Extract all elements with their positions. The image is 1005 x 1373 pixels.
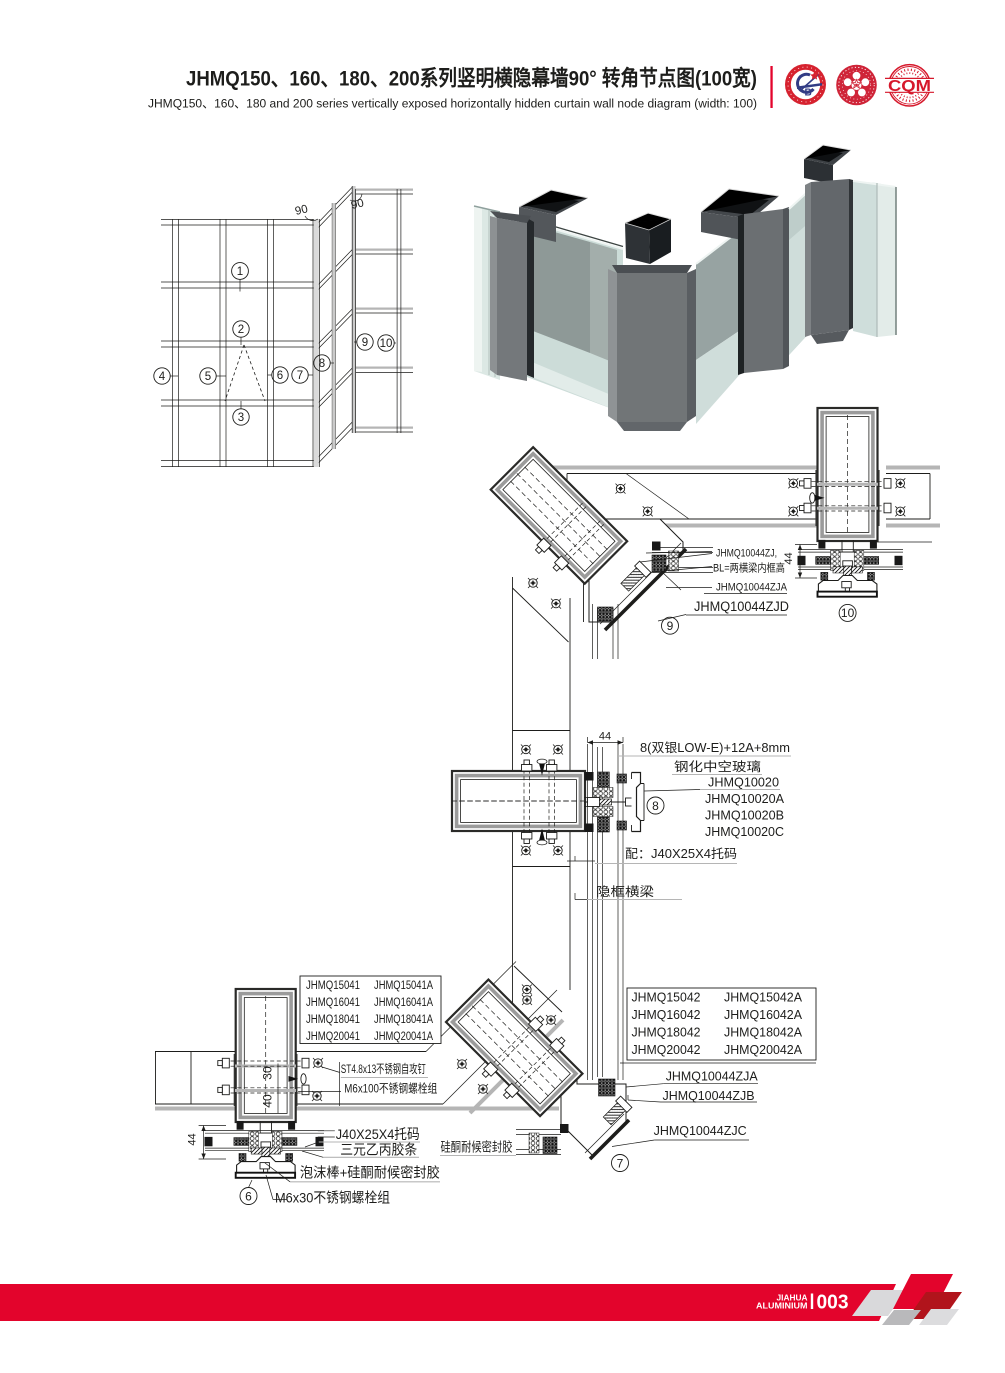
svg-text:JHMQ16042: JHMQ16042 bbox=[632, 1007, 701, 1022]
svg-text:JHMQ10044ZJD: JHMQ10044ZJD bbox=[694, 599, 789, 614]
svg-text:1: 1 bbox=[237, 266, 243, 278]
svg-text:钢化中空玻璃: 钢化中空玻璃 bbox=[674, 759, 761, 774]
svg-text:ST4.8x13不锈钢自攻钉: ST4.8x13不锈钢自攻钉 bbox=[341, 1061, 426, 1076]
svg-text:JHMQ20042A: JHMQ20042A bbox=[724, 1042, 802, 1057]
svg-text:44: 44 bbox=[599, 731, 611, 743]
svg-text:B: B bbox=[805, 88, 812, 99]
svg-text:BL=两横梁内框高: BL=两横梁内框高 bbox=[713, 561, 785, 575]
svg-text:JHMQ10020A: JHMQ10020A bbox=[705, 792, 785, 806]
svg-text:JHMQ10020C: JHMQ10020C bbox=[705, 825, 784, 839]
svg-text:JHMQ20041: JHMQ20041 bbox=[306, 1029, 360, 1043]
svg-text:JHMQ10044ZJA: JHMQ10044ZJA bbox=[666, 1070, 759, 1084]
svg-text:JHMQ20042: JHMQ20042 bbox=[632, 1042, 701, 1057]
svg-text:JHMQ15041: JHMQ15041 bbox=[306, 978, 360, 992]
svg-text:JHMQ10044ZJC: JHMQ10044ZJC bbox=[654, 1124, 747, 1138]
svg-text:5: 5 bbox=[205, 371, 211, 383]
svg-text:配：J40X25X4托码: 配：J40X25X4托码 bbox=[625, 847, 737, 861]
svg-text:JHMQ16041: JHMQ16041 bbox=[306, 995, 360, 1009]
svg-text:7: 7 bbox=[297, 370, 303, 382]
svg-text:8: 8 bbox=[652, 799, 659, 813]
svg-text:40: 40 bbox=[261, 1094, 275, 1108]
svg-text:9: 9 bbox=[667, 619, 674, 633]
svg-text:30: 30 bbox=[261, 1066, 275, 1080]
svg-text:ALUMINIUM: ALUMINIUM bbox=[756, 1301, 808, 1310]
svg-text:8(双银LOW-E)+12A+8mm: 8(双银LOW-E)+12A+8mm bbox=[640, 741, 790, 755]
svg-text:3: 3 bbox=[238, 412, 244, 424]
svg-text:硅酮耐候密封胶: 硅酮耐候密封胶 bbox=[441, 1140, 513, 1155]
svg-text:2: 2 bbox=[238, 324, 244, 336]
svg-text:003: 003 bbox=[817, 1291, 849, 1314]
svg-text:9: 9 bbox=[362, 337, 368, 349]
svg-text:JHMQ16041A: JHMQ16041A bbox=[374, 995, 434, 1009]
svg-text:8: 8 bbox=[319, 358, 325, 370]
svg-text:JHMQ16042A: JHMQ16042A bbox=[724, 1007, 802, 1022]
svg-text:JHMQ150、160、180 and 200 series: JHMQ150、160、180 and 200 series verticall… bbox=[148, 97, 757, 111]
svg-text:4: 4 bbox=[159, 371, 166, 383]
svg-text:JHMQ18041A: JHMQ18041A bbox=[374, 1012, 434, 1026]
svg-text:JHMQ15042A: JHMQ15042A bbox=[724, 990, 802, 1005]
svg-text:JHMQ18042A: JHMQ18042A bbox=[724, 1025, 802, 1040]
svg-text:三元乙丙胶条: 三元乙丙胶条 bbox=[340, 1142, 417, 1158]
svg-text:JHMQ18041: JHMQ18041 bbox=[306, 1012, 360, 1026]
svg-text:泡沫棒+硅酮耐候密封胶: 泡沫棒+硅酮耐候密封胶 bbox=[300, 1165, 440, 1181]
svg-text:隐框横梁: 隐框横梁 bbox=[596, 884, 655, 899]
svg-text:JHMQ10044ZJ,: JHMQ10044ZJ, bbox=[716, 548, 777, 560]
svg-text:JHMQ15042: JHMQ15042 bbox=[632, 990, 701, 1005]
svg-text:10: 10 bbox=[841, 606, 855, 620]
svg-text:J40X25X4托码: J40X25X4托码 bbox=[336, 1126, 420, 1142]
svg-text:JHMQ150、160、180、200系列竖明横隐幕墙90°: JHMQ150、160、180、200系列竖明横隐幕墙90° 转角节点图(100… bbox=[186, 66, 757, 91]
svg-text:M6x100不锈钢螺栓组: M6x100不锈钢螺栓组 bbox=[344, 1081, 437, 1096]
svg-text:6: 6 bbox=[277, 370, 283, 382]
svg-text:JHMQ10044ZJB: JHMQ10044ZJB bbox=[663, 1089, 755, 1103]
svg-text:JHMQ10020: JHMQ10020 bbox=[708, 776, 779, 790]
svg-text:JHMQ18042: JHMQ18042 bbox=[632, 1025, 701, 1040]
svg-text:10: 10 bbox=[380, 338, 393, 350]
svg-text:JHMQ10044ZJA: JHMQ10044ZJA bbox=[716, 582, 788, 594]
svg-text:7: 7 bbox=[617, 1156, 624, 1170]
svg-text:JHMQ20041A: JHMQ20041A bbox=[374, 1029, 434, 1043]
svg-text:44: 44 bbox=[187, 1133, 199, 1145]
svg-text:CQM: CQM bbox=[888, 78, 931, 95]
svg-text:JHMQ15041A: JHMQ15041A bbox=[374, 978, 434, 992]
svg-text:M6x30不锈钢螺栓组: M6x30不锈钢螺栓组 bbox=[275, 1190, 390, 1206]
svg-text:JHMQ10020B: JHMQ10020B bbox=[705, 809, 784, 823]
svg-text:44: 44 bbox=[783, 552, 795, 564]
svg-text:6: 6 bbox=[245, 1189, 252, 1203]
